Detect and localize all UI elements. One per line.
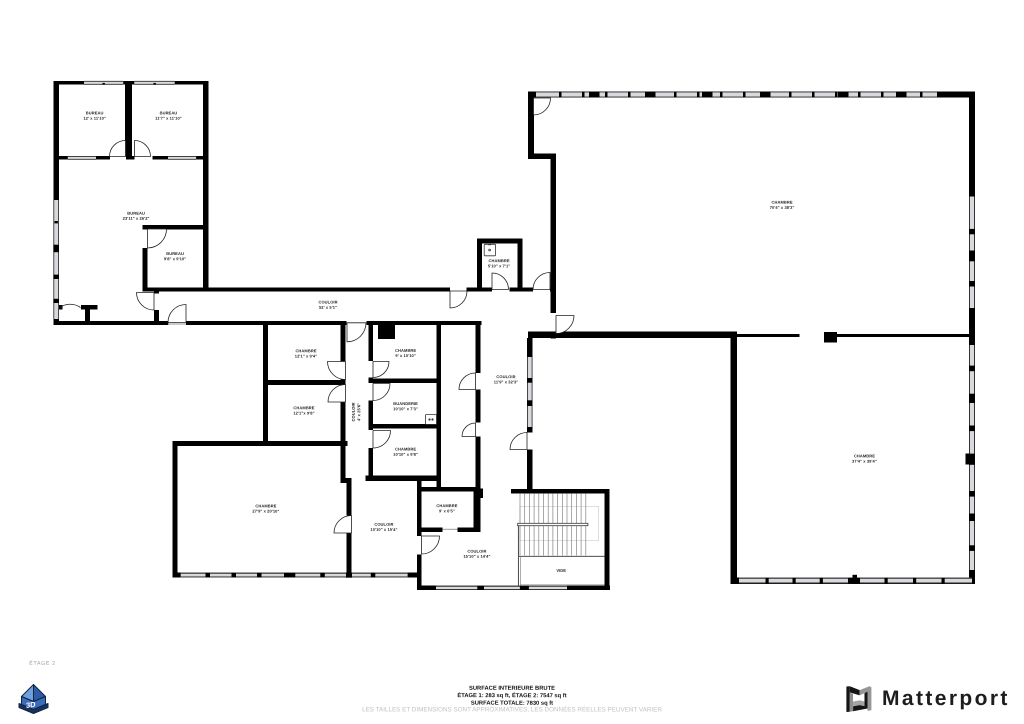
svg-text:12'1"x 9'8": 12'1"x 9'8" bbox=[293, 410, 314, 415]
svg-text:4' x 25'6": 4' x 25'6" bbox=[356, 403, 361, 421]
svg-text:12' x 11'10": 12' x 11'10" bbox=[83, 116, 106, 121]
svg-text:11'7" x 11'10": 11'7" x 11'10" bbox=[155, 116, 182, 121]
svg-text:ÉTAGE 1: 283 sq ft, ÉTAGE 2: 7: ÉTAGE 1: 283 sq ft, ÉTAGE 2: 7547 sq ft bbox=[457, 691, 566, 699]
svg-text:SURFACE INTERIEURE BRUTE: SURFACE INTERIEURE BRUTE bbox=[469, 686, 555, 692]
svg-text:23'11" x 26'2": 23'11" x 26'2" bbox=[123, 216, 150, 221]
svg-text:9'8" x 9'10": 9'8" x 9'10" bbox=[164, 256, 186, 261]
svg-text:VIDE: VIDE bbox=[556, 568, 566, 573]
svg-text:70'4" x 38'3": 70'4" x 38'3" bbox=[770, 205, 795, 210]
svg-text:15'10" x 14'4": 15'10" x 14'4" bbox=[463, 554, 490, 559]
svg-text:ÉTAGE 2: ÉTAGE 2 bbox=[29, 660, 55, 667]
svg-text:10'10" x 7'3": 10'10" x 7'3" bbox=[393, 406, 418, 411]
svg-text:Matterport: Matterport bbox=[882, 687, 1010, 710]
svg-text:LES TAILLES ET DIMENSIONS SONT: LES TAILLES ET DIMENSIONS SONT APPROXIMA… bbox=[362, 704, 662, 713]
svg-text:9' x 10'10": 9' x 10'10" bbox=[395, 353, 415, 358]
svg-text:9' x 6'5": 9' x 6'5" bbox=[439, 508, 455, 513]
svg-text:52' x 5'1": 52' x 5'1" bbox=[319, 305, 337, 310]
svg-text:12'1" x 9'4": 12'1" x 9'4" bbox=[295, 353, 317, 358]
svg-text:27'9" x 20'10": 27'9" x 20'10" bbox=[252, 509, 279, 514]
svg-text:3D: 3D bbox=[26, 700, 36, 710]
svg-text:COULOIR: COULOIR bbox=[351, 402, 356, 421]
svg-text:10'10" x 15'4": 10'10" x 15'4" bbox=[370, 527, 397, 532]
svg-text:11'9" x 32'3": 11'9" x 32'3" bbox=[494, 379, 519, 384]
svg-text:37'4" x 39'4": 37'4" x 39'4" bbox=[852, 459, 877, 464]
svg-text:5'10" x 7'1": 5'10" x 7'1" bbox=[488, 263, 510, 268]
svg-text:10'10" x 9'8": 10'10" x 9'8" bbox=[393, 452, 418, 457]
